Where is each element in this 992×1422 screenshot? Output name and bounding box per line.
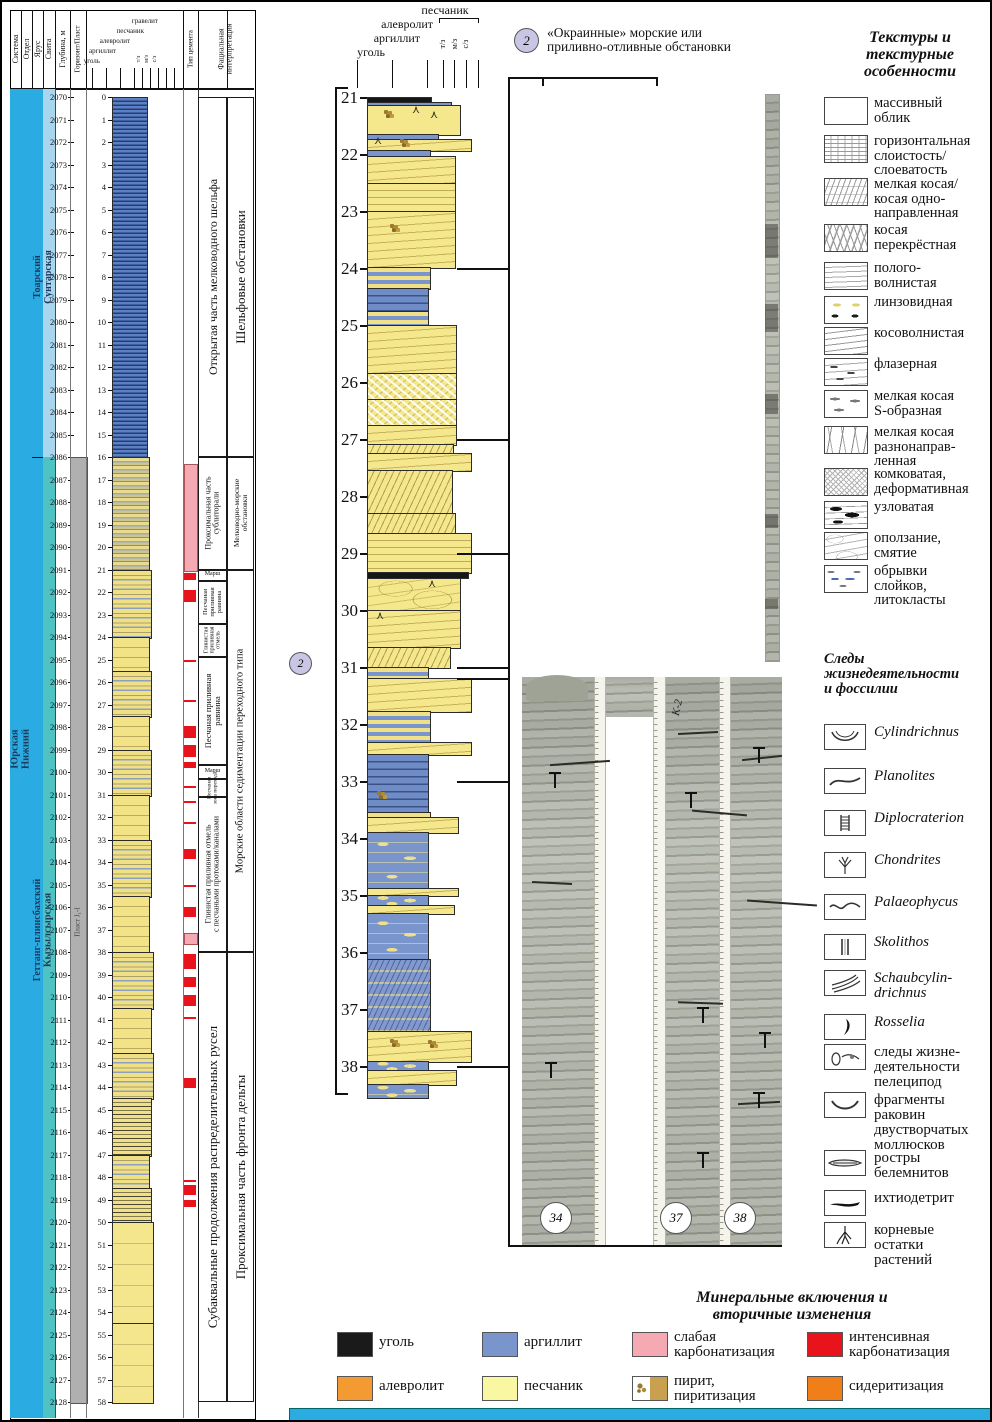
core-metre-label: 11: [90, 340, 106, 350]
texture-legend-label: флазерная: [874, 357, 992, 372]
core-strip-band: [765, 224, 778, 258]
depth-tick-label: 2123: [46, 1285, 67, 1295]
stage-boundary: [32, 457, 43, 458]
texture-legend-label: мелкая косая разнонаправ- ленная: [874, 425, 992, 469]
core-depth-mark: [758, 747, 760, 763]
scale-grain-label: с/з: [152, 56, 158, 63]
depth-tick: [68, 322, 74, 323]
depth-tick-label: 2124: [46, 1307, 67, 1317]
depth-tick-label: 2127: [46, 1375, 67, 1385]
scale-grain-label: т/з: [136, 56, 142, 63]
depth-tick-label: 2120: [46, 1217, 67, 1227]
intense-carbonatization-mark: [184, 849, 196, 859]
core-metre-label: 35: [90, 880, 106, 890]
core-depth-mark: [702, 1007, 704, 1023]
core-metre-label: 24: [90, 632, 106, 642]
depth-tick-label: 2081: [46, 340, 67, 350]
mini-lithology-segment: [112, 840, 152, 898]
rosselia-icon: [824, 1014, 866, 1040]
mini-lithology-segment: [112, 671, 152, 718]
depth-tick-label: 2108: [46, 947, 67, 957]
horizon-plast-label: Пласт J₁-I: [74, 907, 81, 936]
palaeophycus-icon: [824, 894, 866, 920]
core-metre-label: 50: [90, 1217, 106, 1227]
detail-left-bracket-top: [335, 87, 348, 89]
fossil-legend-label: Planolites: [874, 769, 992, 784]
intense-carbonatization-mark: [184, 573, 196, 580]
core-metre-label: 37: [90, 925, 106, 935]
core-strip-band: [765, 514, 778, 528]
depth-tick-label: 2088: [46, 497, 67, 507]
mini-lithology-segment: [112, 1222, 154, 1325]
core-metre-label: 39: [90, 970, 106, 980]
bottom-blue-bar: [289, 1408, 992, 1422]
massive-texture-icon: [824, 97, 868, 125]
facies-subenvironment-label: Песчаная приливная равнина: [204, 674, 222, 749]
depth-tick: [68, 435, 74, 436]
fossil-legend-label: ростры белемнитов: [874, 1151, 992, 1181]
depth-tick-label: 2109: [46, 970, 67, 980]
fossil-legend-label: Cylindrichnus: [874, 725, 992, 740]
depth-tick-label: 2096: [46, 677, 67, 687]
core-metre-label: 17: [90, 475, 106, 485]
series-label: Нижний: [21, 729, 32, 769]
scale-label-siltstone: алевролит: [98, 38, 130, 45]
depth-tick-label: 2103: [46, 835, 67, 845]
detail-metre-label: 26: [328, 373, 358, 393]
header-system-label: Система: [11, 35, 19, 64]
detail-lithology-segment: [367, 678, 472, 713]
depth-tick-label: 2106: [46, 902, 67, 912]
depth-tick-label: 2087: [46, 475, 67, 485]
detail-metre-label: 29: [328, 544, 358, 564]
core-box-number: 38: [724, 1202, 756, 1234]
carbonatization-line-mark: [184, 822, 196, 824]
slump-texture-icon: [824, 532, 868, 560]
core-depth-mark: [697, 1007, 709, 1009]
core-metre-label: 8: [90, 272, 106, 282]
core-metre-label: 46: [90, 1127, 106, 1137]
depth-tick-label: 2071: [46, 115, 67, 125]
core-metre-label: 16: [90, 452, 106, 462]
facies-subenvironment-label: Песчаная приливная равнина: [202, 587, 222, 616]
core-metre-label: 58: [90, 1397, 106, 1407]
core-metre-label: 23: [90, 610, 106, 620]
core-column-photo: [666, 677, 719, 1245]
depth-tick-label: 2100: [46, 767, 67, 777]
depth-tick-label: 2116: [46, 1127, 67, 1137]
intense-carbonatization-mark: [184, 907, 196, 917]
detail-grain-label: с/з: [462, 40, 470, 49]
intense-carbonatization-mark: [184, 1185, 196, 1195]
core-depth-mark: [759, 1032, 771, 1034]
depth-tick-label: 2110: [46, 992, 67, 1002]
cement-col-left-border: [183, 89, 184, 1418]
scale-label-argillite: аргиллит: [88, 48, 116, 55]
texture-legend-label: массивный облик: [874, 96, 992, 125]
fossil-legend-label: ихтиодетрит: [874, 1191, 992, 1206]
depth-tick-label: 2115: [46, 1105, 67, 1115]
depth-tick: [68, 367, 74, 368]
top-frame-line: [509, 77, 658, 79]
core-depth-mark: [753, 1092, 765, 1094]
core-depth-mark: [545, 1062, 557, 1064]
intense-carbonatization-mark: [184, 745, 196, 757]
core-strip-band: [765, 394, 778, 414]
scale-label-gravelstone: гравелит: [126, 18, 158, 25]
depth-tick: [68, 120, 74, 121]
detail-scale-tick: [443, 60, 444, 88]
mini-lithology-segment: [112, 1323, 154, 1404]
photo-link-stub: [457, 667, 509, 669]
mini-lithology-segment: [112, 1053, 154, 1100]
depth-tick-label: 2076: [46, 227, 67, 237]
detail-scale-coal-label: уголь: [347, 46, 385, 59]
depth-tick-label: 2111: [46, 1015, 67, 1025]
depth-tick-label: 2126: [46, 1352, 67, 1362]
ruler-strip: [719, 677, 731, 1245]
core-depth-mark: [549, 772, 561, 774]
header-cement-type-label: Тип цемента: [187, 30, 194, 68]
detail-scale-tick: [454, 60, 455, 88]
detail-lithology-segment: [367, 183, 456, 214]
core-depth-mark: [753, 747, 765, 749]
core-metre-label: 0: [90, 92, 106, 102]
detail-scale-siltstone-label: алевролит: [367, 18, 433, 31]
depth-tick-label: 2092: [46, 587, 67, 597]
nodular-texture-icon: [824, 501, 868, 529]
detail-lithology-segment: [367, 1031, 472, 1064]
scale-label-coal: уголь: [80, 58, 100, 65]
photo-link-stub: [457, 268, 509, 270]
fossil-legend-label: Chondrites: [874, 853, 992, 868]
depth-tick-label: 2119: [46, 1195, 67, 1205]
carbonatization-line-mark: [184, 700, 196, 702]
xbed-multi-texture-icon: [824, 426, 868, 454]
intense-carbonatization-swatch: [807, 1332, 843, 1357]
header-formation-label: Свита: [45, 39, 53, 60]
core-metre-label: 22: [90, 587, 106, 597]
depth-tick-label: 2104: [46, 857, 67, 867]
fossil-legend-title: Следы жизнедеятельности и фоссилии: [824, 652, 989, 698]
detail-metre-label: 36: [328, 943, 358, 963]
core-metre-label: 1: [90, 115, 106, 125]
facies-subenvironment-label: Марш: [200, 571, 225, 577]
mini-lithology-segment: [112, 637, 150, 673]
depth-tick-label: 2099: [46, 745, 67, 755]
depth-tick: [68, 345, 74, 346]
core-metre-label: 28: [90, 722, 106, 732]
scale-tick: [134, 68, 135, 88]
core-metre-label: 14: [90, 407, 106, 417]
carbonatization-line-mark: [184, 801, 196, 803]
depth-tick-label: 2112: [46, 1037, 67, 1047]
depth-tick-label: 2094: [46, 632, 67, 642]
core-top-cap: [526, 675, 588, 701]
header-series-label: Отдел: [22, 39, 30, 60]
core-metre-label: 13: [90, 385, 106, 395]
fossil-legend-label: Skolithos: [874, 935, 992, 950]
detail-grain-label: м/з: [450, 39, 458, 49]
depth-tick-label: 2107: [46, 925, 67, 935]
photo-link-stub: [457, 781, 509, 783]
photo-link-stub: [457, 553, 509, 555]
core-metre-label: 26: [90, 677, 106, 687]
sideritization-swatch: [807, 1376, 843, 1401]
depth-tick-label: 2080: [46, 317, 67, 327]
core-metre-label: 3: [90, 160, 106, 170]
detail-metre-label: 27: [328, 430, 358, 450]
mini-lithology-segment: [112, 570, 152, 640]
detail-metre-label: 23: [328, 202, 358, 222]
detail-metre-label: 34: [328, 829, 358, 849]
depth-tick-label: 2070: [46, 92, 67, 102]
weak-carbonatization-mark: [184, 933, 198, 945]
depth-tick-label: 2078: [46, 272, 67, 282]
core-metre-label: 54: [90, 1307, 106, 1317]
scale-tick: [166, 68, 167, 88]
pyrite-icon: [390, 224, 402, 233]
core-metre-label: 49: [90, 1195, 106, 1205]
depth-tick-label: 2079: [46, 295, 67, 305]
fossil-legend-label: фрагменты раковин двустворчатых моллюско…: [874, 1093, 992, 1153]
pyrite-icon: [377, 791, 389, 800]
rip-up-texture-icon: [824, 565, 868, 593]
header-divider: [86, 10, 87, 88]
ichthyodetritus-icon: [824, 1190, 866, 1216]
core-metre-label: 9: [90, 295, 106, 305]
facies-environment-label: Морские области седиментации переходного…: [235, 649, 246, 874]
core-metre-label: 53: [90, 1285, 106, 1295]
photo-link-stub: [457, 439, 509, 441]
core-depth-mark: [758, 1092, 760, 1108]
header-divider: [183, 10, 184, 88]
core-metre-label: 10: [90, 317, 106, 327]
depth-tick-label: 2095: [46, 655, 67, 665]
detail-scale-sandstone-label: песчаник: [410, 4, 480, 17]
depth-tick-label: 2091: [46, 565, 67, 575]
carbonatization-line-mark: [184, 1017, 196, 1019]
detail-metre-label: 35: [328, 886, 358, 906]
xbed-s-texture-icon: [824, 390, 868, 418]
facies-environment-label: Проксимальная часть фронта дельты: [234, 1075, 248, 1279]
core-depth-mark: [702, 1152, 704, 1168]
detail-lithology-segment: [367, 156, 456, 185]
plant-roots-icon: [824, 1222, 866, 1248]
coal-swatch: [337, 1332, 373, 1357]
core-photo-strip: [765, 94, 780, 662]
mini-lithology-segment: [112, 716, 150, 752]
header-divider: [198, 10, 199, 88]
detail-scale-tick: [427, 60, 428, 88]
schaubcylindrichnus-icon: [824, 970, 866, 996]
diplocraterion-icon: [824, 810, 866, 836]
carbonatization-line-mark: [184, 1180, 196, 1182]
mineral-legend-title: Минеральные включения и вторичные измене…: [622, 1290, 962, 1324]
zone-2-badge: 2: [289, 652, 312, 675]
depth-tick-label: 2072: [46, 137, 67, 147]
core-metre-label: 41: [90, 1015, 106, 1025]
core-metre-label: 25: [90, 655, 106, 665]
pyrite-icon: [400, 139, 412, 148]
core-metre-label: 36: [90, 902, 106, 912]
mini-lithology-segment: [112, 896, 150, 954]
stage-label-gettang: Геттанг-плинсбахский: [32, 879, 42, 982]
detail-lithology-segment: [367, 959, 431, 1033]
core-metre-label: 6: [90, 227, 106, 237]
depth-tick-label: 2097: [46, 700, 67, 710]
intense-carbonatization-mark: [184, 954, 196, 969]
fossil-legend-label: Palaeophycus: [874, 895, 992, 910]
core-depth-mark: [697, 1152, 709, 1154]
detail-metre-label: 22: [328, 145, 358, 165]
scale-tick: [120, 68, 121, 88]
horizontal-texture-icon: [824, 135, 868, 163]
sandstone-bracket-tick: [478, 18, 479, 23]
plant-root-icon: ⋏: [374, 135, 382, 146]
depth-tick-label: 2089: [46, 520, 67, 530]
scale-tick: [92, 68, 93, 88]
core-metre-label: 34: [90, 857, 106, 867]
core-metre-label: 20: [90, 542, 106, 552]
facies-subenvironment-label: Глинистая приливная отмель с песчаными п…: [204, 816, 221, 932]
weak-carbonatization-swatch: [632, 1332, 668, 1357]
depth-tick-label: 2073: [46, 160, 67, 170]
scale-grain-label: м/з: [144, 55, 150, 63]
facies-subenvironment-label: Проксимальная часть сублиторали: [204, 477, 221, 550]
depth-tick-label: 2085: [46, 430, 67, 440]
photo-bottom-line: [514, 1245, 782, 1247]
texture-legend-label: узловатая: [874, 500, 992, 515]
texture-legend-label: комковатая, деформативная: [874, 467, 992, 496]
carbonatization-line-mark: [184, 660, 196, 662]
detail-lithology-segment: [367, 1084, 429, 1099]
texture-legend-label: полого- волнистая: [874, 261, 992, 290]
detail-metre-label: 24: [328, 259, 358, 279]
core-metre-label: 31: [90, 790, 106, 800]
scale-tick: [150, 68, 151, 88]
depth-tick: [68, 412, 74, 413]
detail-metre-label: 37: [328, 1000, 358, 1020]
core-metre-label: 51: [90, 1240, 106, 1250]
core-metre-label: 45: [90, 1105, 106, 1115]
depth-tick-label: 2084: [46, 407, 67, 417]
depth-tick-label: 2105: [46, 880, 67, 890]
depth-tick: [68, 187, 74, 188]
detail-metre-label: 38: [328, 1057, 358, 1077]
core-metre-label: 44: [90, 1082, 106, 1092]
depth-tick: [68, 300, 74, 301]
ruler-strip: [653, 677, 666, 1245]
intense-carbonatization-mark: [184, 977, 196, 987]
top-frame-tick: [656, 77, 658, 86]
detail-lithology-segment: [367, 470, 453, 515]
detail-lithology-segment: [367, 913, 429, 961]
depth-tick-label: 2098: [46, 722, 67, 732]
detail-metre-label: 30: [328, 601, 358, 621]
detail-lithology-segment: [367, 399, 457, 427]
core-metre-label: 56: [90, 1352, 106, 1362]
siltstone-swatch: [337, 1376, 373, 1401]
detail-scale-tick: [392, 60, 393, 88]
texture-legend-label: косоволнистая: [874, 326, 992, 341]
header-divider: [70, 10, 71, 88]
core-metre-label: 27: [90, 700, 106, 710]
detail-grain-label: т/з: [439, 40, 447, 49]
header-divider: [55, 10, 56, 88]
mineral-legend-label: слабая карбонатизация: [674, 1330, 804, 1360]
depth-tick-label: 2128: [46, 1397, 67, 1407]
detail-lithology-segment: [367, 647, 451, 669]
detail-left-bracket-bottom: [335, 1093, 348, 1095]
lenticular-texture-icon: [824, 296, 868, 324]
detail-lithology-segment: [367, 325, 457, 375]
depth-tick: [68, 210, 74, 211]
core-depth-mark: [764, 1032, 766, 1048]
pelecypod-traces-icon: [824, 1044, 866, 1070]
planolites-icon: [824, 768, 866, 794]
depth-tick: [68, 97, 74, 98]
depth-tick-label: 2090: [46, 542, 67, 552]
depth-tick: [68, 165, 74, 166]
header-stage-label: Ярус: [33, 41, 41, 58]
core-metre-label: 12: [90, 362, 106, 372]
detail-lithology-segment: [367, 754, 429, 815]
mini-lithology-segment: [112, 1188, 152, 1224]
detail-lithology-segment: [367, 711, 431, 744]
xbed-uni-texture-icon: [824, 178, 868, 206]
depth-tick: [68, 142, 74, 143]
texture-legend-label: обрывки слойков, литокласты: [874, 564, 992, 608]
detail-scale-tick: [478, 60, 479, 88]
core-metre-label: 7: [90, 250, 106, 260]
environment-2-badge: 2: [514, 28, 539, 53]
facies-environment-label: Шельфовые обстановки: [234, 210, 248, 343]
texture-legend-label: мелкая косая S-образная: [874, 389, 992, 418]
depth-tick: [68, 390, 74, 391]
core-metre-label: 30: [90, 767, 106, 777]
core-metre-label: 32: [90, 812, 106, 822]
core-metre-label: 19: [90, 520, 106, 530]
detail-lithology-segment: [367, 425, 457, 446]
depth-tick-label: 2075: [46, 205, 67, 215]
facies-subenvironment-label: Открытая часть мелководного шельфа: [206, 179, 218, 375]
mini-lithology-segment: [112, 97, 148, 459]
scale-tick: [142, 68, 143, 88]
intense-carbonatization-mark: [184, 762, 196, 768]
core-box-number: 34: [540, 1202, 572, 1234]
detail-lithology-segment: [367, 578, 461, 612]
core-depth-mark: [690, 792, 692, 808]
geological-column-figure: СистемаОтделЯрусСвитаГлубина, мГоризонт/…: [0, 0, 992, 1422]
mineral-legend-label: интенсивная карбонатизация: [849, 1330, 979, 1360]
intense-carbonatization-mark: [184, 995, 196, 1006]
detail-lithology-segment: [367, 288, 429, 313]
texture-legend-label: горизонтальная слоистость/ слоеватость: [874, 134, 992, 178]
depth-tick: [68, 277, 74, 278]
detail-left-bracket: [335, 87, 337, 1095]
core-metre-label: 18: [90, 497, 106, 507]
core-box-number: 37: [660, 1202, 692, 1234]
top-frame-tick: [542, 77, 544, 86]
core-metre-label: 40: [90, 992, 106, 1002]
mini-lithology-segment: [112, 1008, 152, 1055]
core-metre-label: 38: [90, 947, 106, 957]
facies-subenvironment-label: Глинистая приливная отмель: [203, 627, 222, 654]
depth-tick: [68, 255, 74, 256]
environment-annotation-text: «Окраинные» морские или приливно-отливны…: [547, 26, 731, 54]
core-depth-mark: [550, 1062, 552, 1078]
